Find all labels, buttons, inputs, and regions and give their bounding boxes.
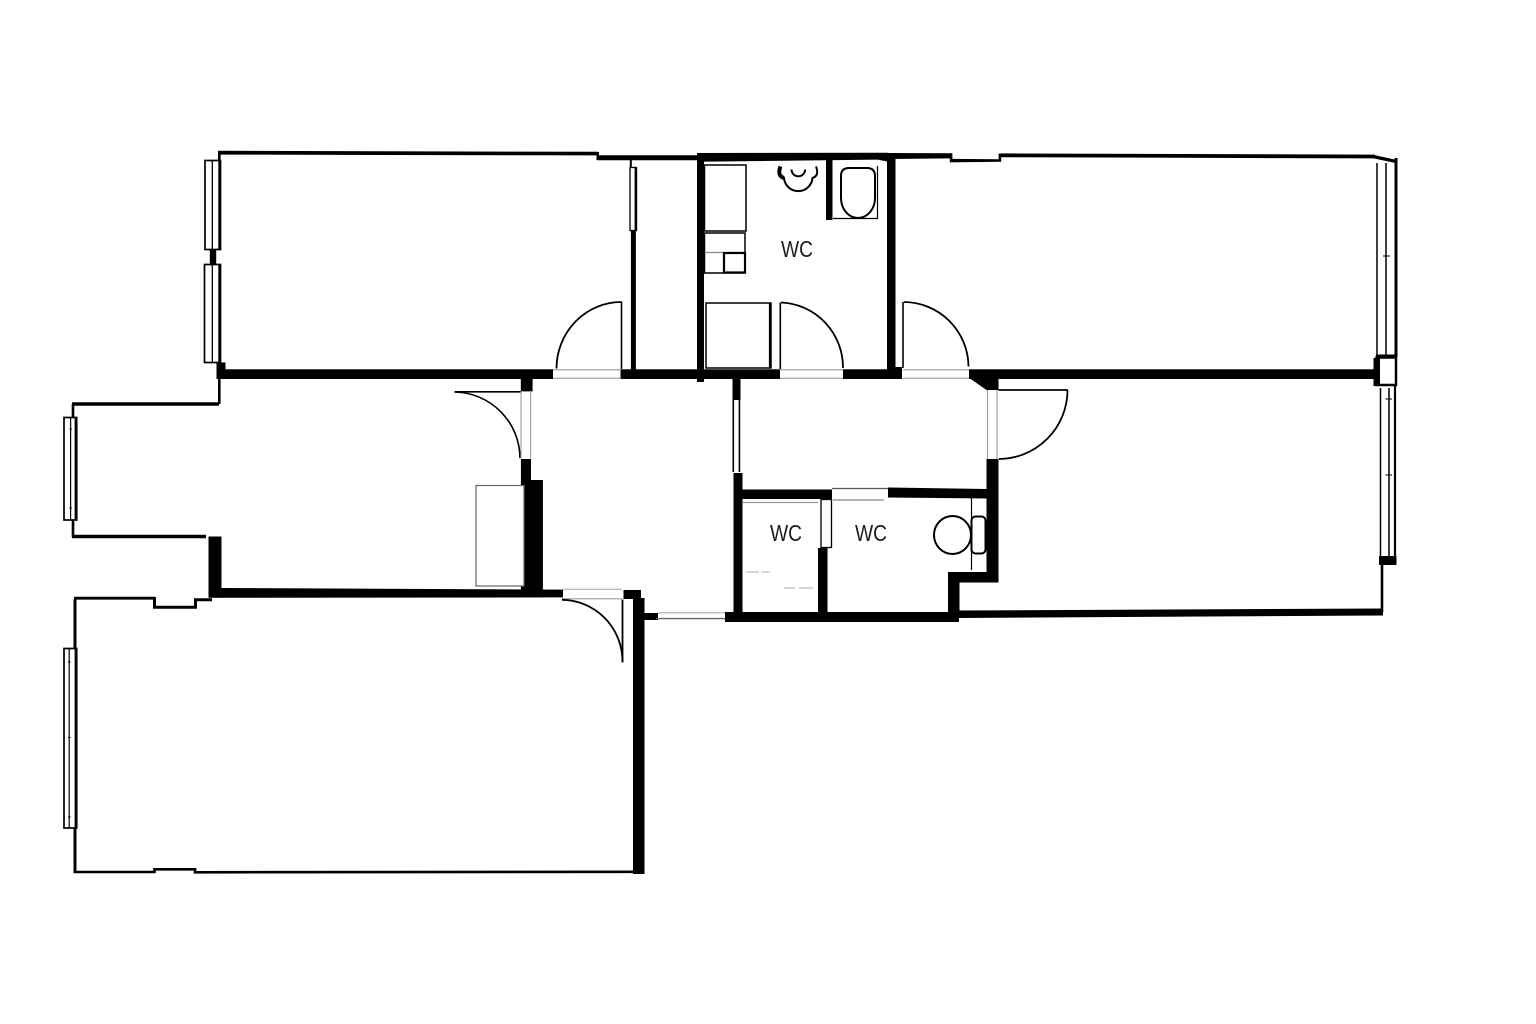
svg-text:WC: WC [770, 520, 802, 546]
svg-text:WC: WC [781, 236, 813, 262]
svg-text:WC: WC [855, 520, 887, 546]
